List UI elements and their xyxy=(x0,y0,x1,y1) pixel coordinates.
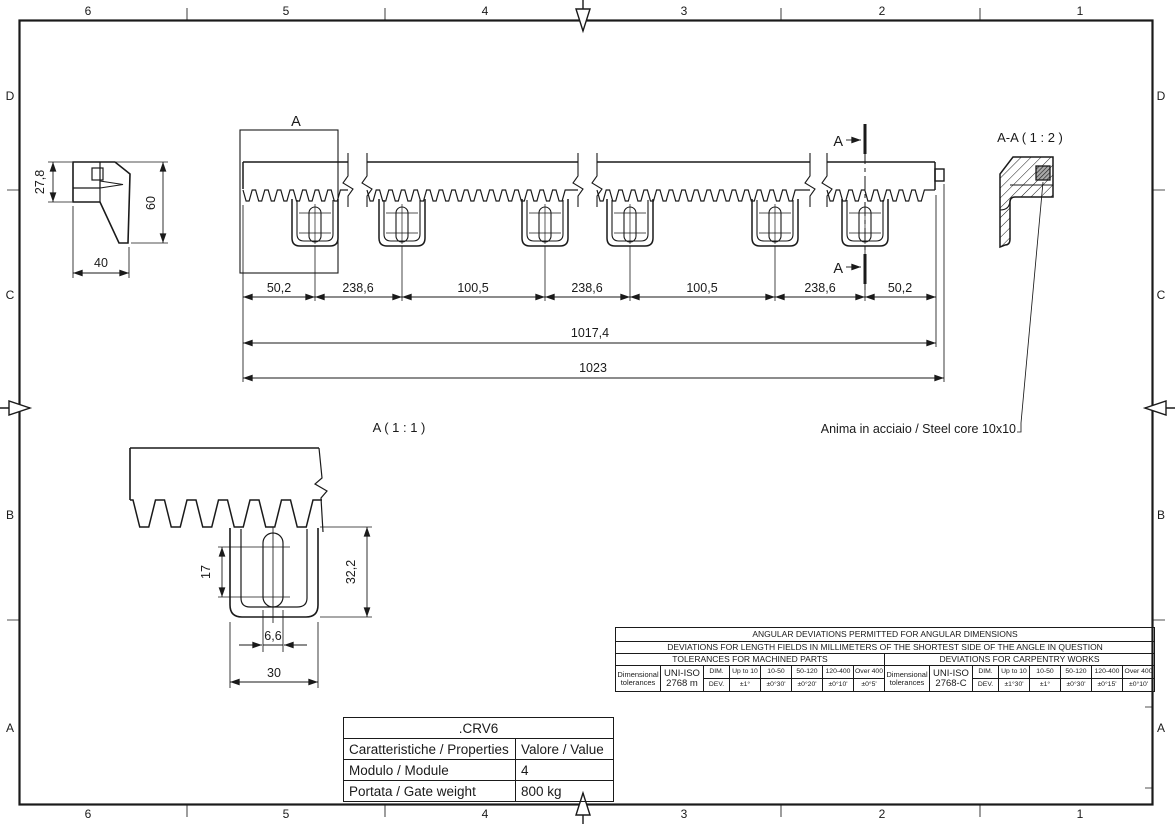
frame-row-label: C xyxy=(1157,288,1166,302)
tol-row-angular: ANGULAR DEVIATIONS PERMITTED FOR ANGULAR… xyxy=(616,628,1155,642)
tol-dim-range: 50-120 xyxy=(792,666,823,679)
tol-dev-value: ±0°5' xyxy=(854,679,885,692)
properties-col-header: Caratteristiche / Properties xyxy=(344,739,516,760)
center-mark-left xyxy=(0,401,30,415)
side-view-core-square xyxy=(92,168,103,180)
value-col-header: Valore / Value xyxy=(516,739,614,760)
center-mark-top xyxy=(576,0,590,31)
dim-label-6-6: 6,6 xyxy=(264,629,281,643)
dim-label-chain: 50,2 xyxy=(267,281,291,295)
dim-label-17: 17 xyxy=(199,565,213,579)
properties-table-grid: .CRV6 Caratteristiche / Properties Valor… xyxy=(343,717,614,802)
frame-col-label: 2 xyxy=(879,807,886,821)
frame-col-label: 4 xyxy=(482,807,489,821)
frame-row-label: B xyxy=(6,508,14,522)
tol-dev-value: ±0°20' xyxy=(792,679,823,692)
tolerance-table-grid: ANGULAR DEVIATIONS PERMITTED FOR ANGULAR… xyxy=(615,627,1155,692)
tol-dev-value: ±0°10' xyxy=(1123,679,1155,692)
frame-row-label: A xyxy=(6,721,14,735)
tol-row-length-fields: DEVIATIONS FOR LENGTH FIELDS IN MILLIMET… xyxy=(616,642,1155,654)
tol-dev-value: ±0°15' xyxy=(1092,679,1123,692)
detail-lug-inner xyxy=(241,529,307,607)
dim-label-1017: 1017,4 xyxy=(571,326,609,340)
tol-dim-range: Over 400 xyxy=(1123,666,1155,679)
tol-machined-standard: UNI-ISO 2768 m xyxy=(661,666,704,692)
tol-dim-range: 10-50 xyxy=(1030,666,1061,679)
standard-line1: UNI-ISO xyxy=(661,669,703,679)
dim-label-30: 30 xyxy=(267,666,281,680)
detail-view xyxy=(130,448,372,688)
core-tab xyxy=(935,169,944,181)
tol-carpentry-standard: UNI-ISO 2768-C xyxy=(930,666,973,692)
dim-label-32-2: 32,2 xyxy=(344,560,358,584)
frame-col-label: 6 xyxy=(85,4,92,18)
section-view xyxy=(1000,157,1053,432)
standard-line2: 2768-C xyxy=(930,679,972,689)
tol-dev-value: ±1°30' xyxy=(999,679,1030,692)
detail-body-outline xyxy=(130,448,319,500)
break-line xyxy=(805,153,815,207)
sheet-frame: 6 5 4 3 2 1 6 5 4 3 2 1 D C B A D C B A xyxy=(0,0,1175,824)
tolerance-table: ANGULAR DEVIATIONS PERMITTED FOR ANGULAR… xyxy=(615,627,1153,691)
tol-dim-range: 50-120 xyxy=(1061,666,1092,679)
dim-label-60: 60 xyxy=(144,196,158,210)
standard-line1: UNI-ISO xyxy=(930,669,972,679)
frame-row-label: D xyxy=(1157,89,1166,103)
frame-col-label: 3 xyxy=(681,4,688,18)
value-gate-weight: 800 kg xyxy=(516,781,614,802)
frame-row-label: A xyxy=(1157,721,1165,735)
dim-label-chain: 100,5 xyxy=(686,281,717,295)
side-view xyxy=(48,162,168,278)
break-line xyxy=(343,153,353,207)
product-code: .CRV6 xyxy=(344,718,614,739)
tol-header-machined: TOLERANCES FOR MACHINED PARTS xyxy=(616,654,885,666)
property-module: Modulo / Module xyxy=(344,760,516,781)
tol-carpentry-label: Dimensional tolerances xyxy=(885,666,930,692)
tol-dev-value: ±1° xyxy=(730,679,761,692)
steel-core-note: Anima in acciaio / Steel core 10x10 xyxy=(821,422,1016,436)
rack-teeth xyxy=(597,190,810,201)
section-marker-top: A xyxy=(833,134,843,150)
steel-core-square xyxy=(1036,166,1050,180)
frame-col-label: 4 xyxy=(482,4,489,18)
tol-dev-value: ±1° xyxy=(1030,679,1061,692)
frame-col-label: 1 xyxy=(1077,807,1084,821)
frame-col-label: 2 xyxy=(879,4,886,18)
tol-dev-value: ±0°30' xyxy=(761,679,792,692)
tol-dim-range: Up to 10 xyxy=(730,666,761,679)
dim-label-chain: 238,6 xyxy=(342,281,373,295)
break-line xyxy=(822,153,832,207)
frame-col-label: 6 xyxy=(85,807,92,821)
core-leader-line xyxy=(1017,182,1043,432)
frame-col-label: 1 xyxy=(1077,4,1084,18)
tol-dev-value: ±0°30' xyxy=(1061,679,1092,692)
tol-dim-range: 10-50 xyxy=(761,666,792,679)
frame-col-label: 5 xyxy=(283,4,290,18)
tol-header-carpentry: DEVIATIONS FOR CARPENTRY WORKS xyxy=(885,654,1155,666)
properties-table: .CRV6 Caratteristiche / Properties Valor… xyxy=(343,717,613,801)
break-line xyxy=(592,153,602,207)
dim-label-1023: 1023 xyxy=(579,361,607,375)
break-line xyxy=(573,153,583,207)
tol-dim-range: Over 400 xyxy=(854,666,885,679)
section-view-title: A-A ( 1 : 2 ) xyxy=(997,130,1063,145)
tol-dim-range: 120-400 xyxy=(1092,666,1123,679)
detail-break-line xyxy=(315,448,327,532)
frame-ticks-side xyxy=(7,190,1165,788)
center-mark-right xyxy=(1145,401,1175,415)
frame-col-label: 3 xyxy=(681,807,688,821)
rack-teeth xyxy=(827,190,935,201)
drawing-sheet: 6 5 4 3 2 1 6 5 4 3 2 1 D C B A D C B A … xyxy=(0,0,1175,824)
frame-row-label: D xyxy=(6,89,15,103)
dim-label-chain: 100,5 xyxy=(457,281,488,295)
tol-dim-label: DIM. xyxy=(973,666,999,679)
value-module: 4 xyxy=(516,760,614,781)
property-gate-weight: Portata / Gate weight xyxy=(344,781,516,802)
break-line xyxy=(362,153,372,207)
rack-teeth xyxy=(243,190,348,201)
tol-dim-label: DIM. xyxy=(704,666,730,679)
dim-label-chain: 238,6 xyxy=(571,281,602,295)
tol-dev-label: DEV. xyxy=(973,679,999,692)
detail-a-marker: A xyxy=(291,114,301,130)
tol-machined-label: Dimensional tolerances xyxy=(616,666,661,692)
frame-col-label: 5 xyxy=(283,807,290,821)
side-view-tooth-profile xyxy=(100,181,123,188)
dim-label-27-8: 27,8 xyxy=(33,170,47,194)
frame-ticks xyxy=(187,8,980,817)
frame-row-label: B xyxy=(1157,508,1165,522)
drawing-linework: 6 5 4 3 2 1 6 5 4 3 2 1 D C B A D C B A … xyxy=(0,0,1175,824)
tol-dim-range: 120-400 xyxy=(823,666,854,679)
tol-dev-value: ±0°10' xyxy=(823,679,854,692)
section-marker-bottom: A xyxy=(833,261,843,277)
dim-label-40: 40 xyxy=(94,256,108,270)
detail-teeth xyxy=(130,500,322,527)
standard-line2: 2768 m xyxy=(661,679,703,689)
main-rack-view xyxy=(130,153,935,527)
tol-dim-range: Up to 10 xyxy=(999,666,1030,679)
detail-view-title: A ( 1 : 1 ) xyxy=(373,420,426,435)
rack-teeth xyxy=(367,190,578,201)
dim-label-chain: 50,2 xyxy=(888,281,912,295)
tol-dev-label: DEV. xyxy=(704,679,730,692)
frame-row-label: C xyxy=(6,288,15,302)
dim-label-chain: 238,6 xyxy=(804,281,835,295)
side-view-outline xyxy=(73,162,130,243)
